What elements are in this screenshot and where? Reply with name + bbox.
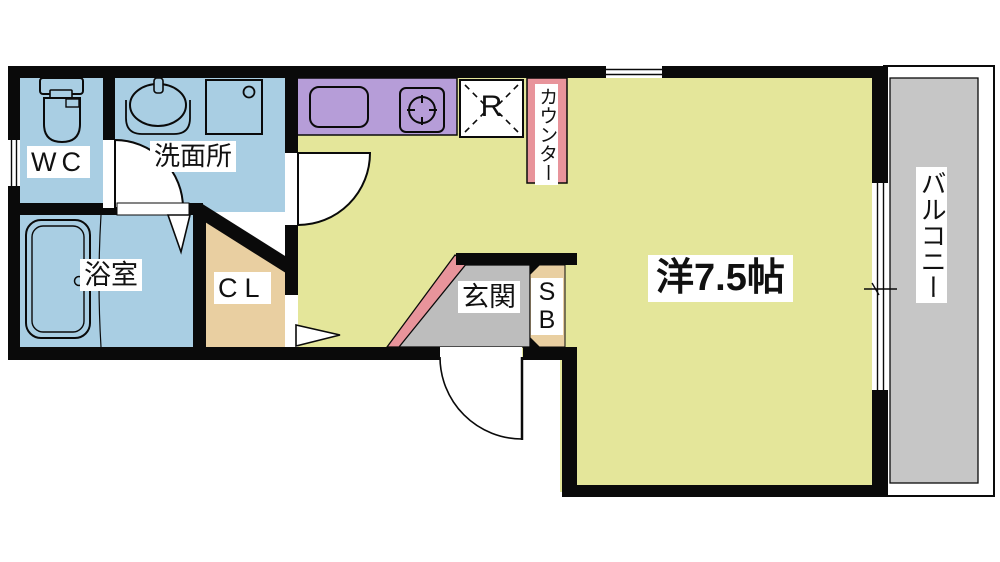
shoe-box-label: SB — [531, 278, 563, 335]
bathroom-label: 浴室 — [80, 259, 142, 291]
toilet-icon — [40, 78, 83, 142]
stove-icon — [400, 88, 444, 132]
left-window — [8, 140, 20, 186]
top-window — [606, 66, 662, 78]
entrance-label: 玄関 — [458, 281, 520, 313]
kitchen-sink-icon — [310, 87, 368, 127]
entrance-door — [440, 347, 522, 440]
washing-machine-icon — [206, 80, 262, 134]
counter-label: カウンター — [535, 84, 558, 185]
refrigerator-label: R — [460, 90, 523, 124]
wc-label: WC — [27, 146, 90, 178]
balcony-label: バルコニー — [916, 167, 947, 303]
floor-plan: WC 洗面所 浴室 CL R カウンター 玄関 SB 洋7.5帖 バルコニー — [0, 0, 1000, 562]
washroom-label: 洗面所 — [150, 141, 236, 172]
main-room-label: 洋7.5帖 — [648, 255, 793, 302]
closet-label: CL — [214, 272, 271, 304]
